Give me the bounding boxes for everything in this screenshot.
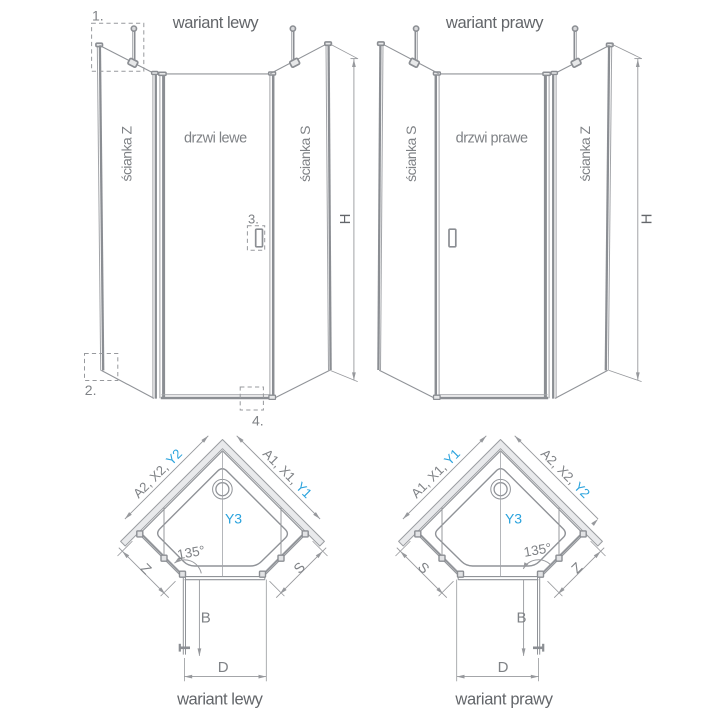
svg-text:B: B [516, 610, 526, 627]
svg-text:H: H [639, 214, 656, 225]
svg-text:Y3: Y3 [505, 511, 522, 527]
svg-text:H: H [337, 214, 354, 225]
svg-text:3.: 3. [248, 212, 259, 227]
svg-text:D: D [218, 659, 229, 676]
svg-text:B: B [201, 610, 211, 627]
svg-text:1.: 1. [92, 8, 104, 24]
svg-text:ścianka Z: ścianka Z [118, 126, 134, 182]
svg-text:ścianka Z: ścianka Z [577, 126, 593, 182]
svg-text:ścianka S: ścianka S [403, 126, 419, 182]
svg-text:wariant prawy: wariant prawy [445, 14, 544, 32]
svg-text:wariant lewy: wariant lewy [172, 14, 260, 32]
svg-text:wariant lewy: wariant lewy [176, 691, 264, 709]
svg-text:2.: 2. [85, 382, 97, 398]
svg-text:drzwi lewe: drzwi lewe [184, 131, 247, 147]
svg-text:D: D [498, 659, 509, 676]
svg-text:ścianka S: ścianka S [297, 126, 313, 182]
svg-text:4.: 4. [252, 413, 264, 429]
svg-text:Y3: Y3 [225, 511, 242, 527]
svg-text:wariant prawy: wariant prawy [454, 691, 553, 709]
svg-text:drzwi prawe: drzwi prawe [456, 131, 528, 147]
